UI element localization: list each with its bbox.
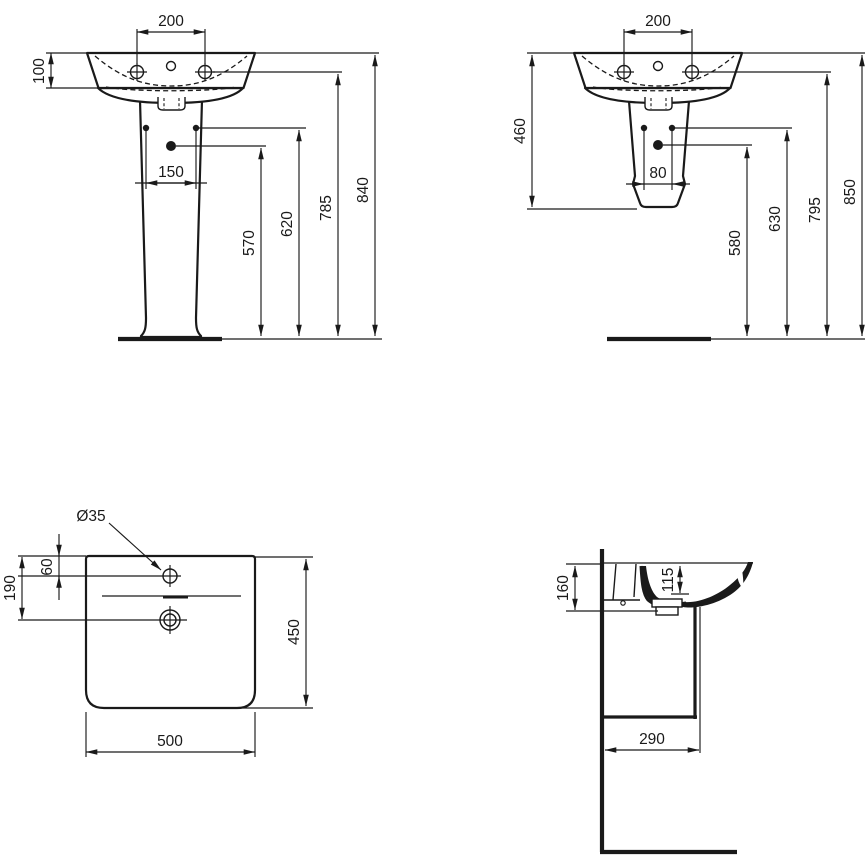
- dim-label-200: 200: [158, 13, 184, 30]
- trap-recess: [158, 97, 185, 110]
- dim-label-795: 795: [807, 197, 824, 223]
- semi-pedestal-outline: [629, 101, 689, 207]
- dim-label-570: 570: [241, 230, 258, 256]
- trap-outlet-hole: [653, 140, 663, 150]
- overflow-hole: [167, 62, 176, 71]
- dim-label-785: 785: [318, 195, 335, 221]
- front-view-semi-pedestal: 200 460 80 580 630 795 850: [512, 13, 865, 339]
- dim-label-150: 150: [158, 164, 184, 181]
- dim-label-290: 290: [639, 731, 665, 748]
- dim-label-60: 60: [39, 558, 56, 576]
- dim-label-80: 80: [649, 165, 667, 182]
- overflow-hole: [654, 62, 663, 71]
- dim-label-160: 160: [555, 575, 572, 601]
- dim-label-100: 100: [31, 58, 48, 84]
- dim-label-850: 850: [842, 179, 859, 205]
- dim-label-115: 115: [660, 568, 677, 593]
- fixing-hole-left: [143, 125, 149, 131]
- fixing-hole-right: [193, 125, 199, 131]
- fixing-hole-left: [641, 125, 647, 131]
- fixing-hole-right: [669, 125, 675, 131]
- front-view-full-pedestal: 200 100 150 570 620 785 840: [31, 13, 382, 339]
- dim-label-diameter: Ø35: [76, 508, 105, 525]
- plan-view: Ø35 60 190 450 500: [2, 508, 313, 757]
- dim-label-500: 500: [157, 733, 183, 750]
- trap-collar-bottom: [656, 607, 678, 615]
- dim-label-190: 190: [2, 575, 19, 601]
- dim-label-580: 580: [727, 230, 744, 256]
- dim-label-200: 200: [645, 13, 671, 30]
- mounting-back-line: [613, 564, 616, 600]
- dim-label-840: 840: [355, 177, 372, 203]
- mounting-bolt-hole: [621, 601, 625, 605]
- trap-recess: [645, 97, 672, 110]
- trap-outlet-hole: [166, 141, 176, 151]
- dim-label-620: 620: [279, 211, 296, 237]
- drawing-canvas: 200 100 150 570 620 785 840: [0, 0, 868, 868]
- dim-label-630: 630: [767, 206, 784, 232]
- pedestal-outline: [140, 100, 202, 337]
- technical-drawing-washbasin: 200 100 150 570 620 785 840: [0, 0, 868, 868]
- dim-label-460: 460: [512, 118, 529, 144]
- dim-label-450: 450: [286, 619, 303, 645]
- side-view: 160 115 290: [555, 549, 753, 852]
- mounting-front-line: [634, 564, 636, 597]
- trap-collar-top: [652, 599, 682, 607]
